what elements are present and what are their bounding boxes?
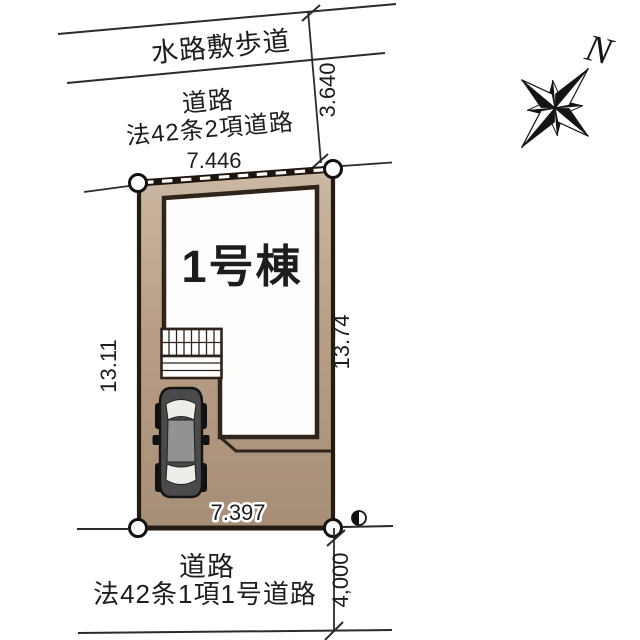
bottom-road-label-2: 法42条1項1号道路 <box>93 579 317 609</box>
dimension-top-setback: 3.640 <box>302 5 340 170</box>
waterway-top-line <box>58 4 396 34</box>
entrance-steps-icon <box>162 356 222 378</box>
site-plan-canvas: 水路敷歩道 道路 法42条2項道路 3.640 <box>0 0 640 640</box>
bottom-road-edge <box>78 630 392 633</box>
survey-marker-icon <box>325 161 342 178</box>
top-road-band: 道路 法42条2項道路 <box>125 86 295 150</box>
boundary-extension-right <box>342 163 392 167</box>
boundary-extension-left <box>84 186 129 192</box>
dim-bottom-value: 7.397 <box>210 500 265 525</box>
utility-pole-marker-icon <box>352 511 366 525</box>
site-plan-page: 水路敷歩道 道路 法42条2項道路 3.640 <box>0 0 640 640</box>
survey-marker-icon <box>325 520 342 537</box>
bottom-road-label-1: 道路 <box>179 552 235 582</box>
waterway-label: 水路敷歩道 <box>150 26 292 69</box>
compass-rose-icon: N <box>488 26 622 176</box>
survey-marker-icon <box>130 520 147 537</box>
dim-left-value: 13.11 <box>96 339 121 392</box>
entrance-grid-icon <box>162 329 222 356</box>
dim-top-value: 7.446 <box>186 148 241 173</box>
dim-right-value: 13.74 <box>329 314 354 369</box>
waterway-band: 水路敷歩道 <box>58 4 396 83</box>
dimension-road-width: 4,000 <box>325 528 353 640</box>
survey-marker-icon <box>130 175 147 192</box>
dim-top-setback-value: 3.640 <box>315 62 340 117</box>
building-label: 1号棟 <box>181 241 302 292</box>
top-road-label-1: 道路 <box>181 86 235 118</box>
dim-road-width-value: 4,000 <box>328 552 353 607</box>
north-label: N <box>580 26 618 74</box>
car-icon <box>153 388 210 497</box>
